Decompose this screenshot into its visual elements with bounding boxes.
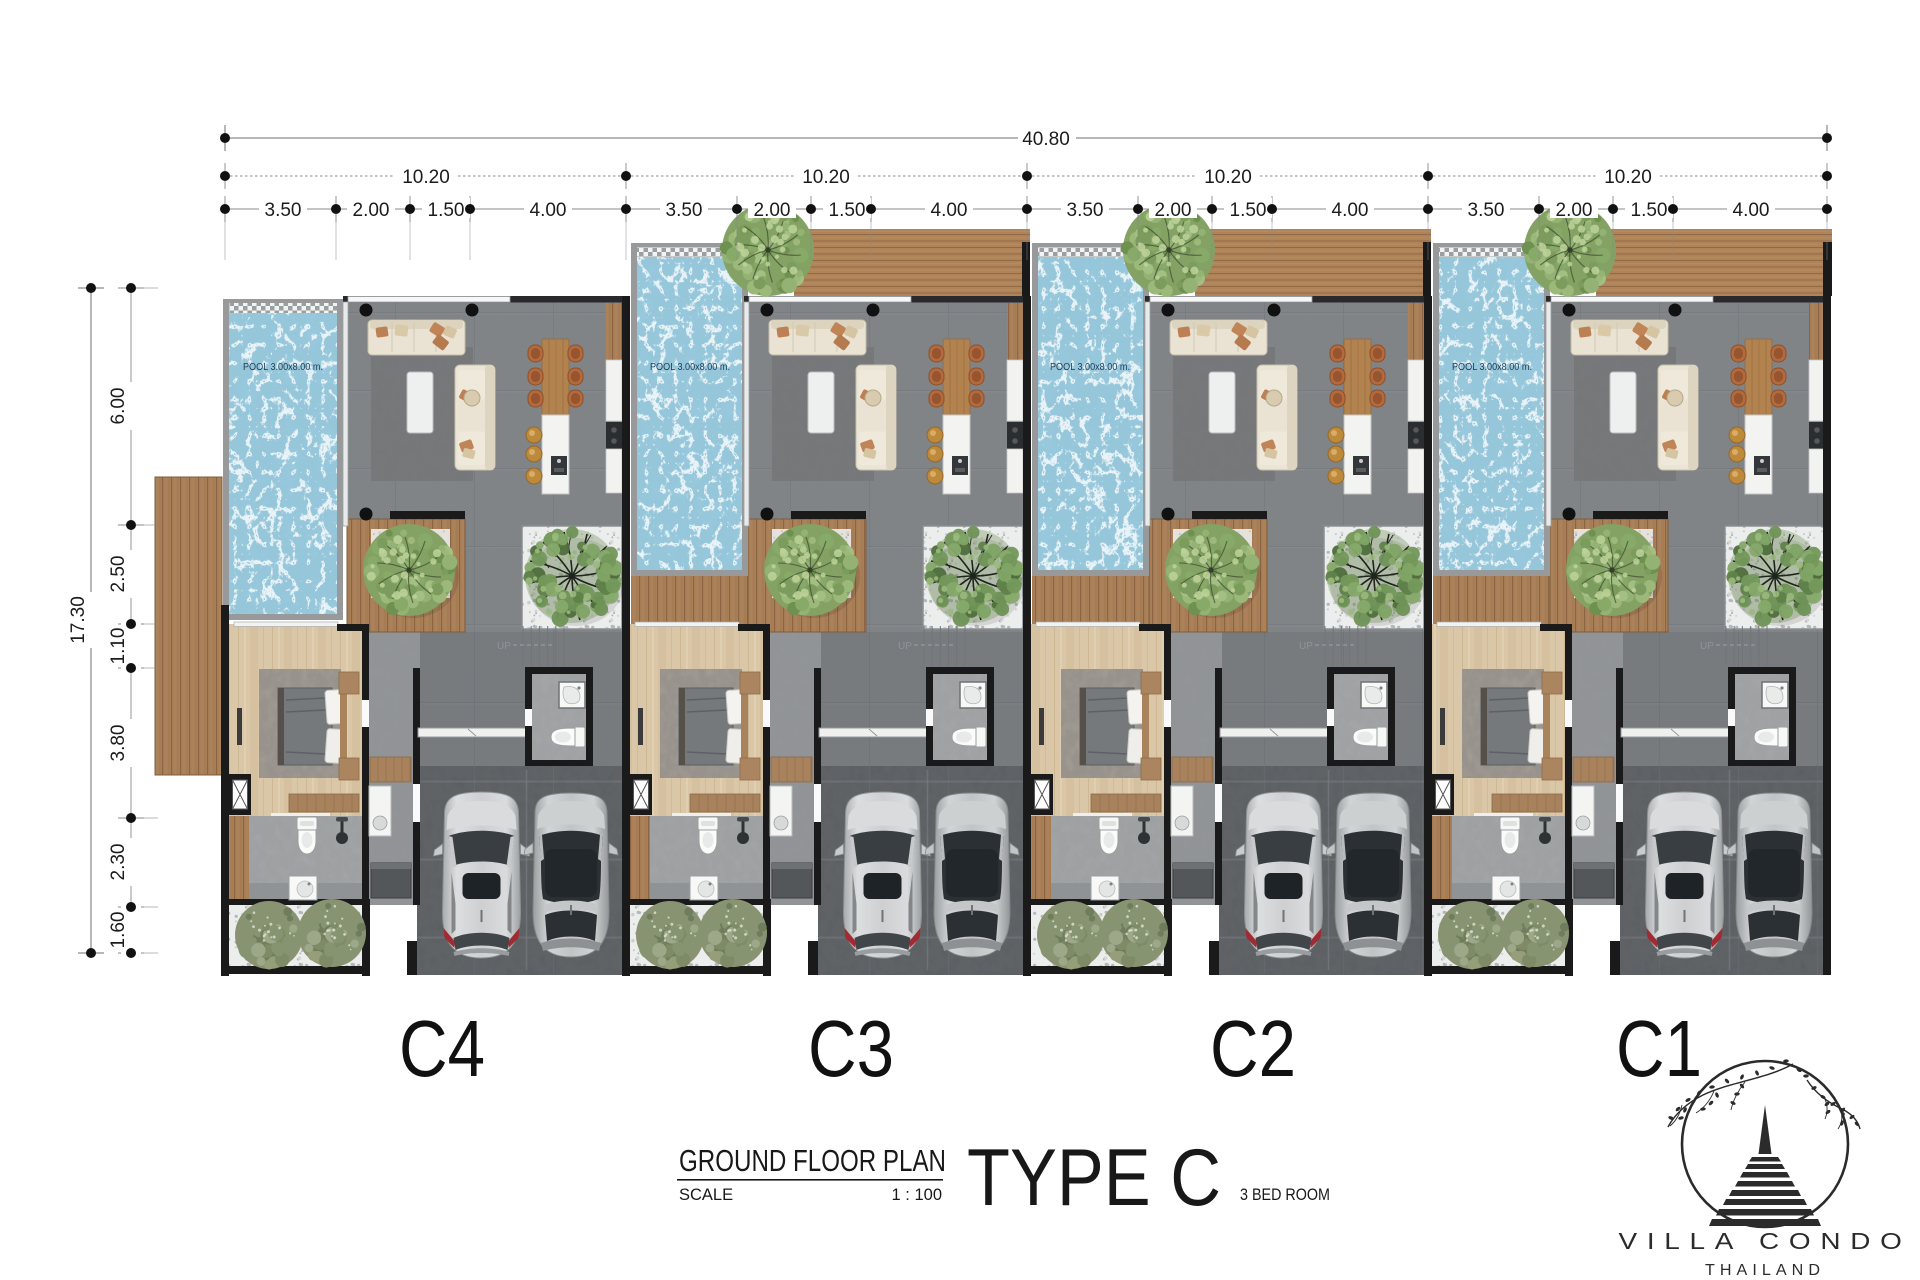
svg-text:UP: UP (1299, 641, 1313, 652)
svg-text:10.20: 10.20 (802, 167, 850, 188)
svg-text:4.00: 4.00 (1332, 200, 1369, 221)
svg-text:2.30: 2.30 (108, 844, 129, 881)
svg-text:TYPE C: TYPE C (967, 1133, 1221, 1223)
svg-text:POOL 3.00x8.00 m.: POOL 3.00x8.00 m. (1452, 361, 1532, 373)
svg-text:10.20: 10.20 (402, 167, 450, 188)
svg-text:POOL 3.00x8.00 m.: POOL 3.00x8.00 m. (243, 361, 323, 373)
svg-text:UP: UP (1700, 641, 1714, 652)
svg-text:3.80: 3.80 (108, 725, 129, 762)
svg-text:4.00: 4.00 (1733, 200, 1770, 221)
svg-text:1.10: 1.10 (108, 628, 129, 665)
svg-text:POOL 3.00x8.00 m.: POOL 3.00x8.00 m. (1050, 361, 1130, 373)
svg-text:1.50: 1.50 (428, 200, 465, 221)
svg-text:2.50: 2.50 (108, 556, 129, 593)
svg-text:C3: C3 (808, 1004, 894, 1093)
svg-text:1 : 100: 1 : 100 (892, 1186, 942, 1204)
svg-text:6.00: 6.00 (108, 388, 129, 425)
svg-text:10.20: 10.20 (1204, 167, 1252, 188)
svg-text:3.50: 3.50 (1067, 200, 1104, 221)
svg-text:1.50: 1.50 (1631, 200, 1668, 221)
svg-text:3.50: 3.50 (265, 200, 302, 221)
svg-text:POOL 3.00x8.00 m.: POOL 3.00x8.00 m. (650, 361, 730, 373)
svg-text:4.00: 4.00 (931, 200, 968, 221)
svg-text:10.20: 10.20 (1604, 167, 1652, 188)
svg-text:1.60: 1.60 (108, 912, 129, 949)
svg-text:1.50: 1.50 (1230, 200, 1267, 221)
svg-text:2.00: 2.00 (1155, 200, 1192, 221)
svg-text:40.80: 40.80 (1022, 129, 1070, 150)
svg-text:3.50: 3.50 (666, 200, 703, 221)
svg-text:3.50: 3.50 (1468, 200, 1505, 221)
svg-text:2.00: 2.00 (754, 200, 791, 221)
svg-text:C1: C1 (1616, 1004, 1702, 1093)
svg-text:THAILAND: THAILAND (1705, 1262, 1825, 1279)
svg-text:2.00: 2.00 (353, 200, 390, 221)
svg-text:VILLA CONDO: VILLA CONDO (1619, 1228, 1912, 1254)
svg-text:GROUND FLOOR PLAN: GROUND FLOOR PLAN (679, 1143, 946, 1178)
svg-text:UP: UP (898, 641, 912, 652)
svg-text:4.00: 4.00 (530, 200, 567, 221)
svg-text:1.50: 1.50 (829, 200, 866, 221)
svg-text:17.30: 17.30 (68, 596, 89, 644)
svg-text:2.00: 2.00 (1556, 200, 1593, 221)
svg-text:C2: C2 (1210, 1004, 1296, 1093)
svg-text:SCALE: SCALE (679, 1186, 733, 1204)
svg-text:3 BED ROOM: 3 BED ROOM (1240, 1186, 1330, 1204)
svg-text:C4: C4 (399, 1004, 485, 1093)
svg-text:UP: UP (497, 641, 511, 652)
